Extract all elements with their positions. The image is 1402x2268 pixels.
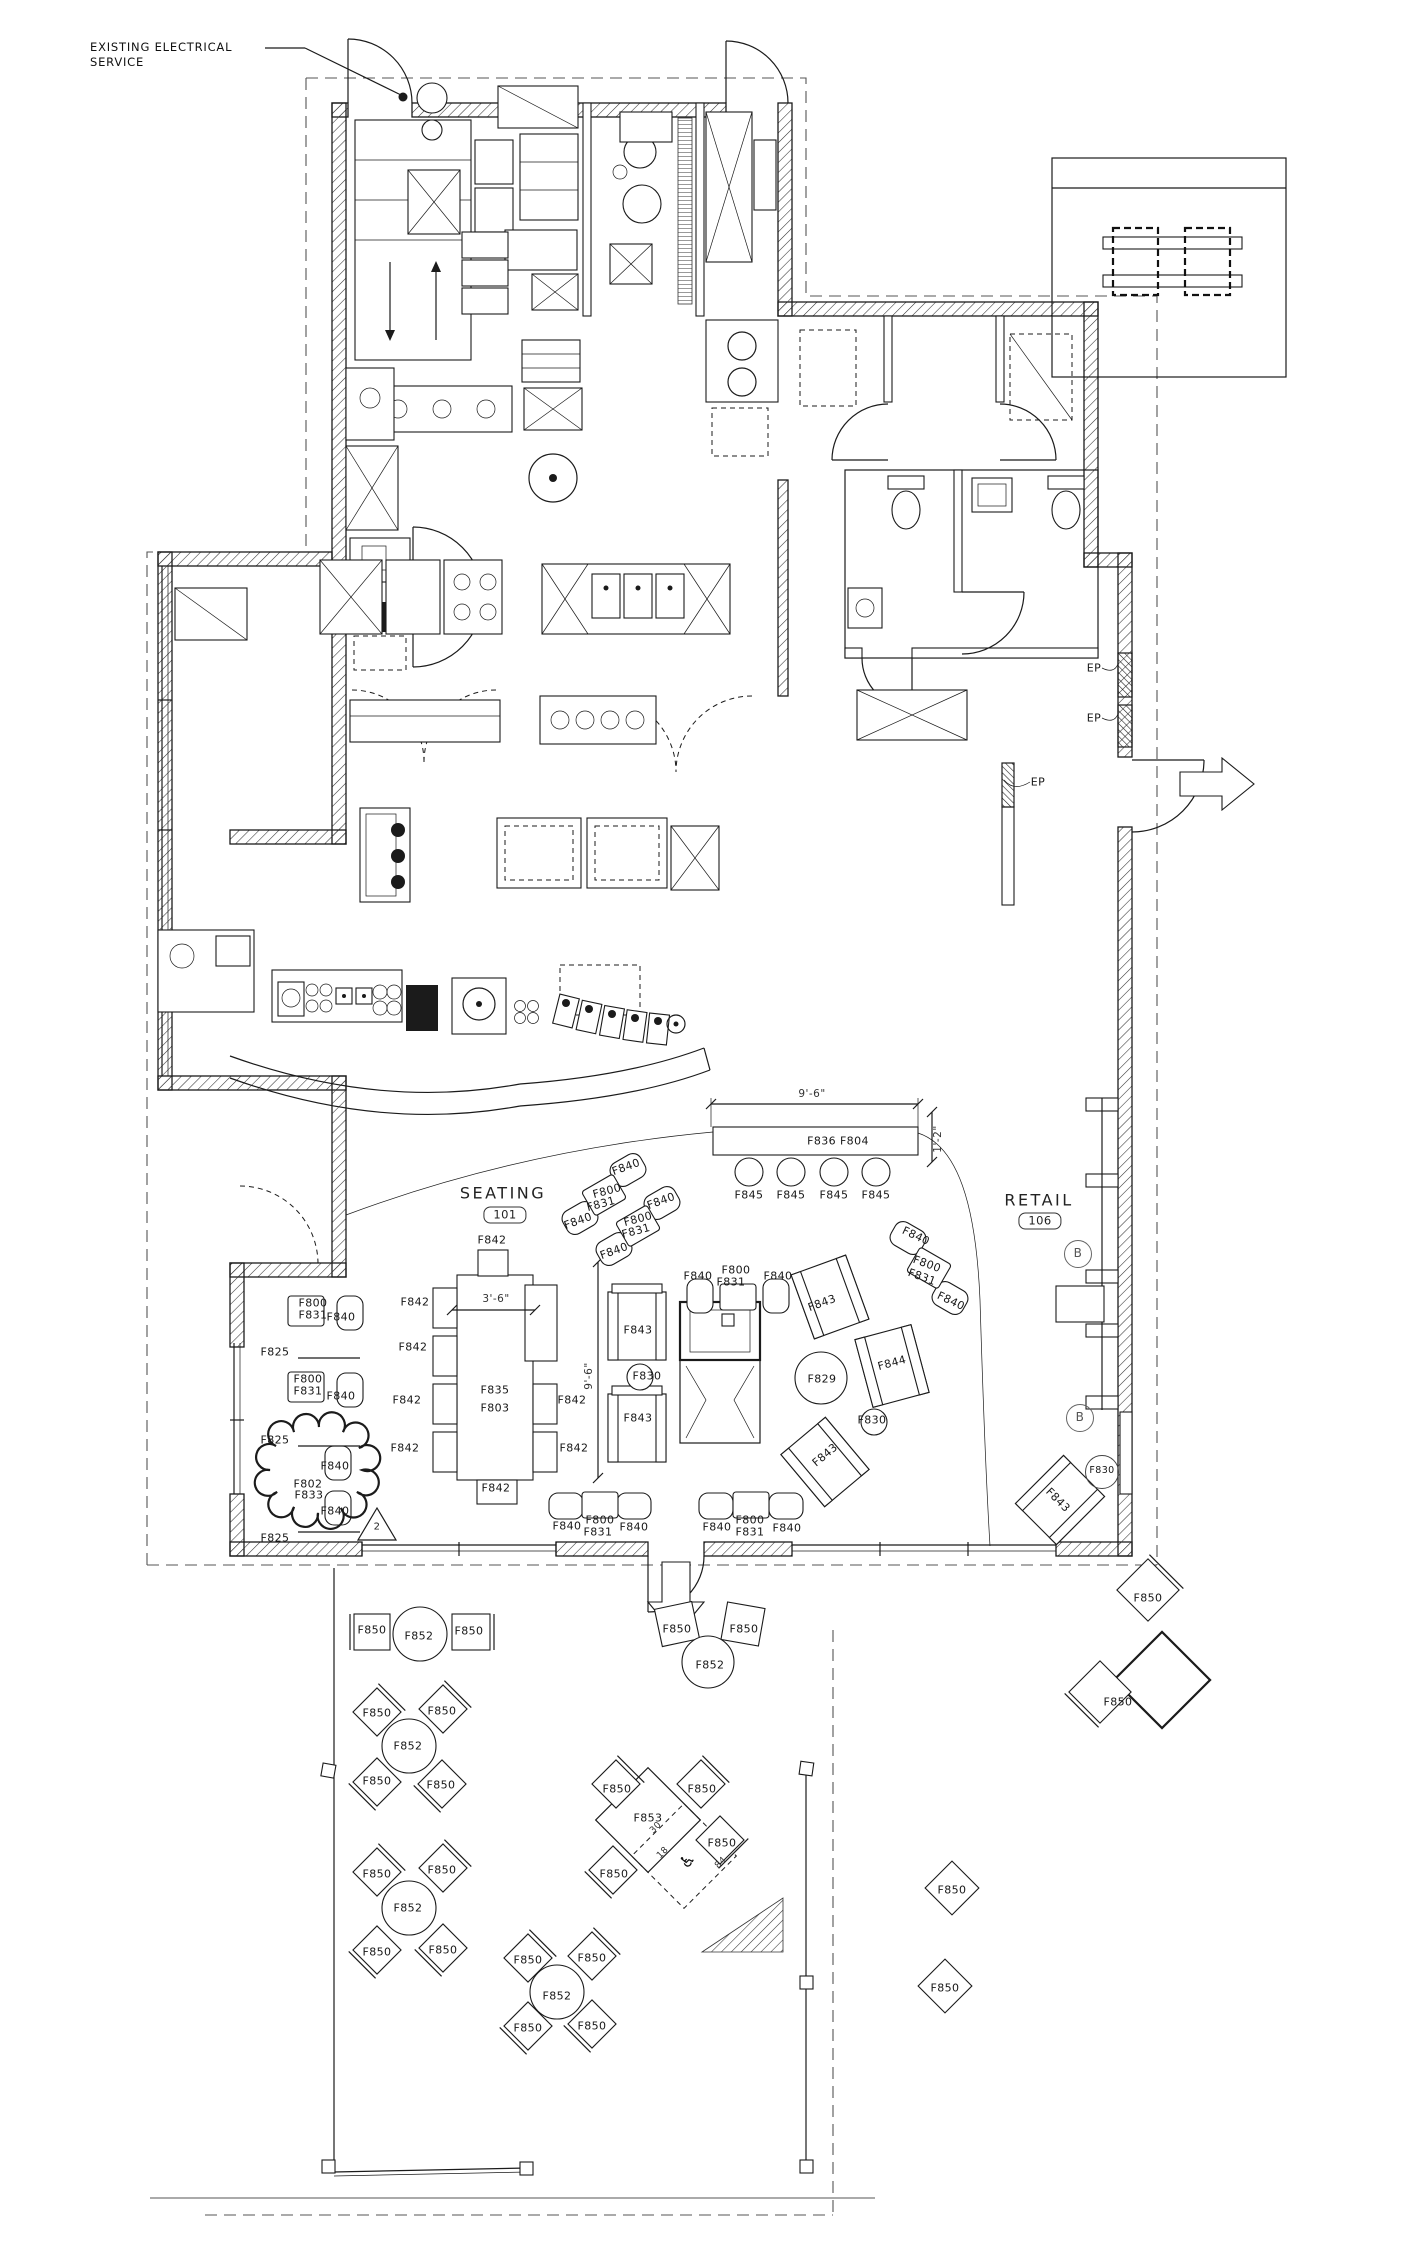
- furniture-code-label: F850: [363, 1946, 392, 1959]
- furniture-code-label: F840: [773, 1522, 802, 1535]
- furniture-code-label: F842: [560, 1442, 589, 1455]
- furniture-code-label: F842: [478, 1234, 507, 1247]
- furniture-code-label: F831: [294, 1385, 323, 1398]
- furniture-code-label: F842: [401, 1296, 430, 1309]
- furniture-code-label: F833: [295, 1489, 324, 1502]
- furniture-code-label: F850: [603, 1783, 632, 1796]
- furniture-code-label: F850: [663, 1623, 692, 1636]
- furniture-code-label: F831: [299, 1309, 328, 1322]
- dimension-label: 84: [713, 1855, 729, 1871]
- furniture-code-label: F829: [808, 1373, 837, 1386]
- furniture-code-label: F850: [688, 1783, 717, 1796]
- furniture-code-label: F830: [1085, 1455, 1119, 1489]
- furniture-code-label: F830: [858, 1414, 887, 1427]
- furniture-code-label: F840: [935, 1289, 967, 1313]
- furniture-code-label: F850: [428, 1705, 457, 1718]
- furniture-code-label: F850: [514, 2022, 543, 2035]
- furniture-code-label: F843: [810, 1441, 841, 1470]
- furniture-code-label: F836 F804: [807, 1135, 869, 1148]
- furniture-code-label: F840: [327, 1390, 356, 1403]
- furniture-code-label: F850: [600, 1868, 629, 1881]
- furniture-code-label: F850: [427, 1779, 456, 1792]
- furniture-code-label: F831: [717, 1276, 746, 1289]
- furniture-code-label: F840: [684, 1270, 713, 1283]
- furniture-code-label: F850: [1104, 1696, 1133, 1709]
- furniture-code-label: F840: [610, 1156, 642, 1178]
- detail-marker: B: [1064, 1240, 1092, 1268]
- dimension-label: 9'-6": [798, 1088, 825, 1100]
- room-number: 101: [483, 1207, 526, 1224]
- furniture-code-label: F852: [543, 1990, 572, 2003]
- furniture-code-label: F850: [363, 1868, 392, 1881]
- furniture-code-label: F843: [624, 1324, 653, 1337]
- furniture-code-label: F850: [578, 1952, 607, 1965]
- furniture-code-label: F842: [391, 1442, 420, 1455]
- furniture-code-label: F843: [624, 1412, 653, 1425]
- furniture-code-label: F840: [321, 1505, 350, 1518]
- dimension-label: 9'-6": [583, 1362, 595, 1389]
- furniture-code-label: F840: [900, 1224, 932, 1248]
- furniture-code-label: F840: [562, 1210, 594, 1232]
- furniture-code-label: F850: [1134, 1592, 1163, 1605]
- furniture-code-label: F840: [598, 1240, 630, 1262]
- revision-number: 2: [374, 1522, 381, 1533]
- furniture-code-label: F831: [584, 1526, 613, 1539]
- furniture-code-label: F850: [708, 1837, 737, 1850]
- furniture-code-label: F835: [481, 1384, 510, 1397]
- dimension-label: 18: [655, 1845, 671, 1861]
- furniture-code-label: F852: [696, 1659, 725, 1672]
- furniture-code-label: F850: [938, 1884, 967, 1897]
- furniture-code-label: F850: [578, 2020, 607, 2033]
- room-label: RETAIL: [1004, 1191, 1073, 1210]
- furniture-code-label: F852: [394, 1740, 423, 1753]
- room-label: SEATING: [460, 1184, 546, 1203]
- furniture-code-label: F845: [820, 1189, 849, 1202]
- room-number: 106: [1018, 1213, 1061, 1230]
- furniture-code-label: F840: [327, 1311, 356, 1324]
- furniture-code-label: F850: [730, 1623, 759, 1636]
- furniture-code-label: F850: [429, 1944, 458, 1957]
- furniture-code-label: F840: [553, 1520, 582, 1533]
- furniture-code-label: F843: [1043, 1485, 1073, 1515]
- floor-plan-sheet: EXISTING ELECTRICAL SERVICE SEATING101RE…: [0, 0, 1402, 2268]
- furniture-code-label: F850: [363, 1775, 392, 1788]
- furniture-code-label: F843: [806, 1292, 838, 1314]
- furniture-code-label: F850: [358, 1624, 387, 1637]
- furniture-code-label: F842: [482, 1482, 511, 1495]
- furniture-code-label: F845: [777, 1189, 806, 1202]
- furniture-code-label: F842: [399, 1341, 428, 1354]
- furniture-code-label: F840: [620, 1521, 649, 1534]
- furniture-code-label: F852: [394, 1902, 423, 1915]
- furniture-code-label: F845: [862, 1189, 891, 1202]
- furniture-code-label: F840: [703, 1521, 732, 1534]
- labels-layer: SEATING101RETAIL106EPEPEPBB29'-6"1'-2"3'…: [0, 0, 1402, 2268]
- furniture-code-label: F850: [363, 1707, 392, 1720]
- furniture-code-label: F831: [736, 1526, 765, 1539]
- furniture-code-label: F850: [428, 1864, 457, 1877]
- furniture-code-label: F840: [321, 1460, 350, 1473]
- furniture-code-label: F825: [261, 1532, 290, 1545]
- furniture-code-label: F825: [261, 1346, 290, 1359]
- furniture-code-label: F803: [481, 1402, 510, 1415]
- furniture-code-label: F844: [876, 1353, 907, 1373]
- furniture-code-label: F830: [633, 1370, 662, 1383]
- ep-label: EP: [1087, 712, 1102, 725]
- accessibility-icon: ♿: [675, 1848, 700, 1873]
- furniture-code-label: F845: [735, 1189, 764, 1202]
- dimension-label: 1'-2": [932, 1125, 944, 1152]
- ep-label: EP: [1087, 662, 1102, 675]
- furniture-code-label: F850: [455, 1625, 484, 1638]
- detail-marker: B: [1066, 1404, 1094, 1432]
- furniture-code-label: F852: [405, 1630, 434, 1643]
- dimension-label: 3'-6": [482, 1293, 509, 1305]
- furniture-code-label: F842: [393, 1394, 422, 1407]
- furniture-code-label: F850: [931, 1982, 960, 1995]
- furniture-code-label: F850: [514, 1954, 543, 1967]
- furniture-code-label: F825: [261, 1434, 290, 1447]
- furniture-code-label: F842: [558, 1394, 587, 1407]
- ep-label: EP: [1031, 776, 1046, 789]
- furniture-code-label: F840: [764, 1270, 793, 1283]
